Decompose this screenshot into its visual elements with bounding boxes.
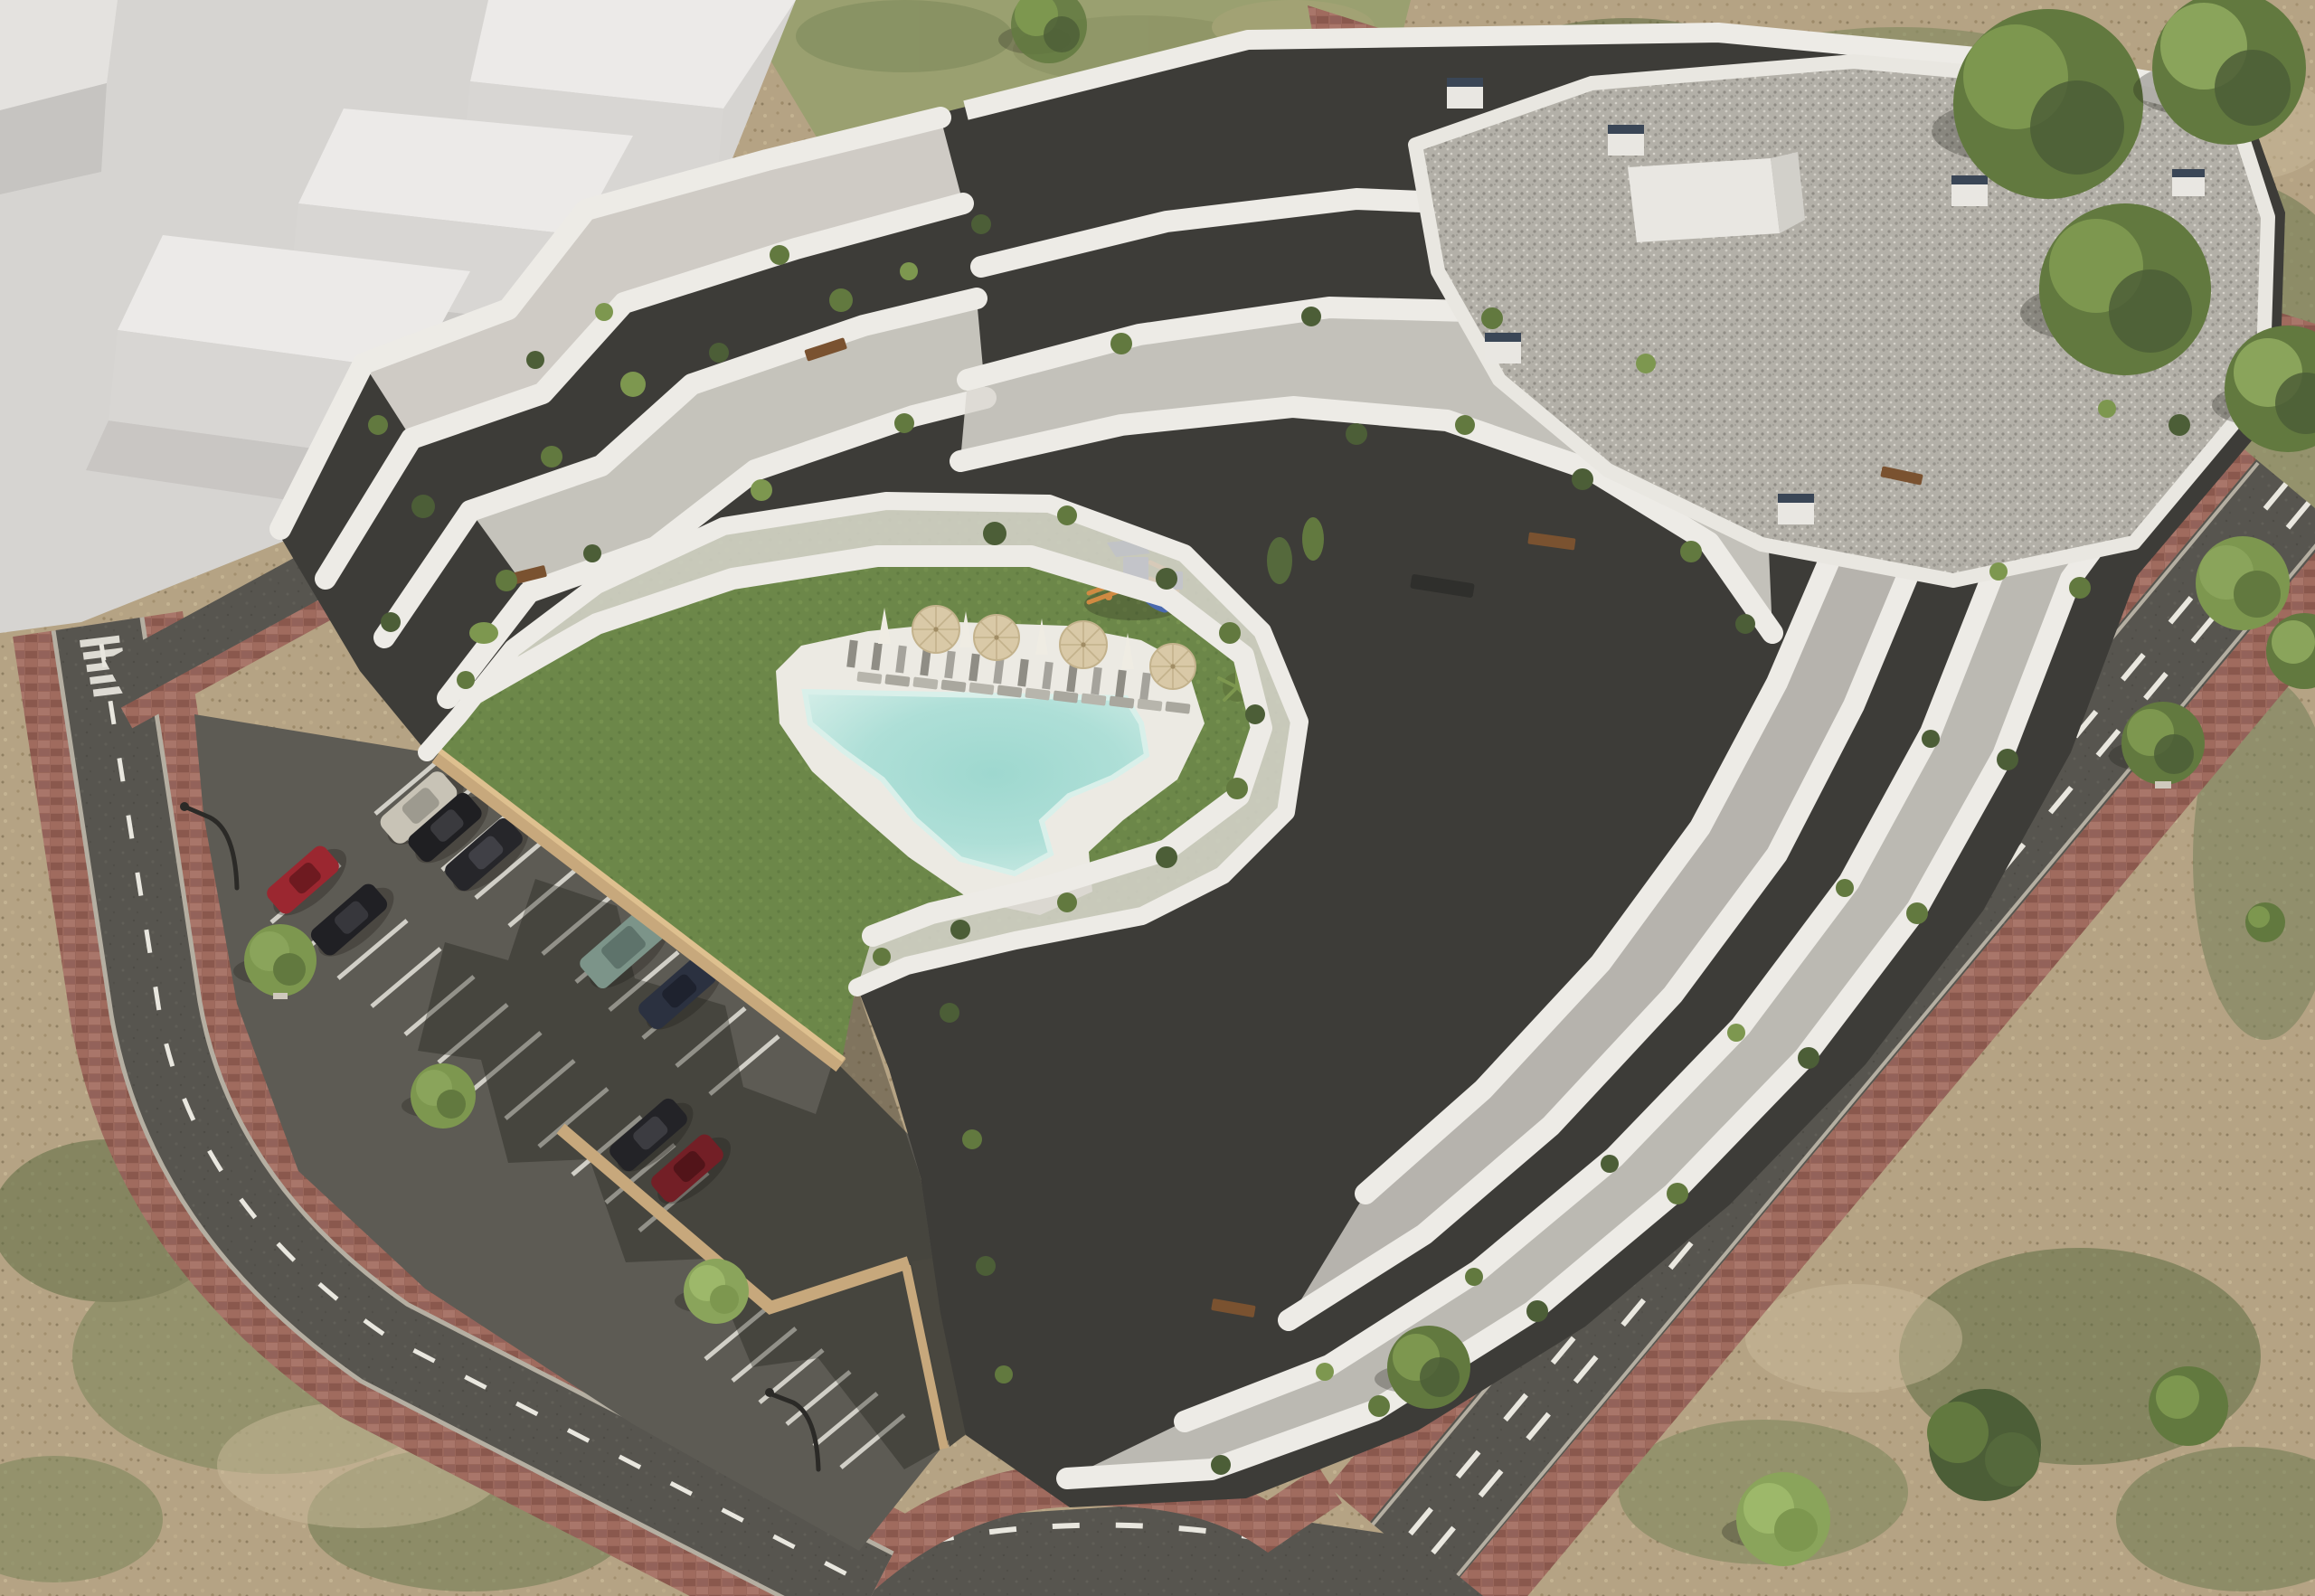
aerial-render-canvas: Aerial architectural rendering	[0, 0, 2315, 1596]
parasol-open-1	[912, 606, 959, 653]
bush	[2196, 536, 2290, 630]
architectural-render: Aerial architectural rendering	[0, 0, 2315, 1596]
parasol-open-2	[974, 615, 1019, 660]
massing-cube-corner	[0, 0, 118, 194]
bush	[2245, 902, 2285, 942]
parasol-open-3	[1060, 621, 1107, 668]
bush	[2149, 1366, 2228, 1446]
parasol-open-4	[1150, 644, 1195, 689]
